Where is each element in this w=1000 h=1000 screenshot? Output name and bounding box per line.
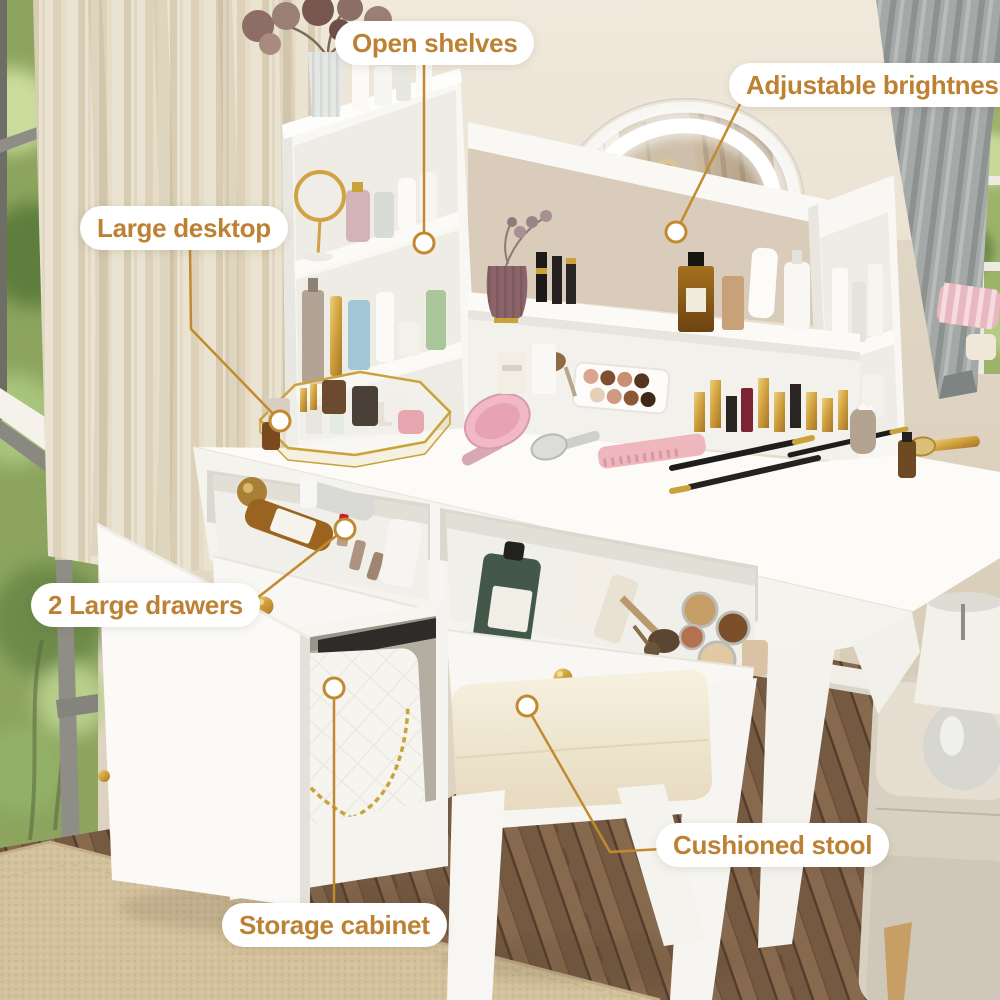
gold-tube bbox=[330, 296, 342, 376]
small-bottle bbox=[300, 476, 317, 508]
callout-cushioned-stool: Cushioned stool bbox=[656, 823, 889, 867]
cosmetic-tube bbox=[748, 247, 779, 319]
table-lamp bbox=[914, 592, 1000, 790]
callout-adjustable-brightness: Adjustable brightness bbox=[729, 63, 1000, 107]
callout-dot bbox=[666, 222, 686, 242]
callout-dot bbox=[414, 233, 434, 253]
cream-jar bbox=[966, 334, 996, 360]
perfume-bottle bbox=[346, 190, 370, 242]
stool-cushion bbox=[452, 670, 712, 812]
bottle bbox=[868, 264, 883, 336]
green-bottle bbox=[426, 290, 446, 350]
door-knob bbox=[98, 770, 110, 782]
black-lipstick bbox=[552, 256, 562, 304]
candle-jar bbox=[498, 352, 526, 394]
bottle bbox=[374, 66, 392, 106]
pump-bottle bbox=[784, 262, 810, 330]
black-lipstick bbox=[566, 258, 576, 304]
cream-jar bbox=[398, 322, 420, 356]
bottle bbox=[352, 58, 369, 111]
gold-round-mirror bbox=[296, 172, 344, 220]
foundation-stick bbox=[722, 276, 744, 330]
powder-pan bbox=[680, 625, 704, 649]
glass-bottle bbox=[374, 192, 394, 238]
callout-dot bbox=[335, 519, 355, 539]
powder-pan bbox=[717, 612, 749, 644]
cosmetic-tube bbox=[376, 292, 394, 362]
callout-dot bbox=[270, 411, 290, 431]
ribbed-vase bbox=[308, 52, 344, 117]
maroon-lipstick bbox=[741, 388, 753, 432]
powder-pan bbox=[683, 593, 717, 627]
candle bbox=[352, 386, 378, 426]
white-bottle bbox=[532, 344, 556, 394]
blue-bottle bbox=[348, 300, 370, 370]
brown-jar bbox=[322, 380, 346, 414]
callout-open-shelves: Open shelves bbox=[335, 21, 534, 65]
dropper-bottle bbox=[898, 440, 916, 478]
tissue-holder bbox=[850, 408, 876, 454]
callout-two-large-drawers: 2 Large drawers bbox=[31, 583, 260, 627]
bottle bbox=[852, 282, 866, 342]
callout-dot bbox=[517, 696, 537, 716]
pump-bottle bbox=[302, 290, 324, 384]
cosmetic-tube bbox=[398, 178, 416, 230]
cosmetic-tube bbox=[420, 172, 437, 222]
callout-storage-cabinet: Storage cabinet bbox=[222, 903, 447, 947]
callout-dot bbox=[324, 678, 344, 698]
pink-jar bbox=[398, 410, 424, 434]
black-lipstick bbox=[536, 252, 547, 302]
callout-large-desktop: Large desktop bbox=[80, 206, 288, 250]
product-photo-vanity-set: Open shelves Adjustable brightness Large… bbox=[0, 0, 1000, 1000]
eyeshadow-palette bbox=[562, 361, 669, 414]
